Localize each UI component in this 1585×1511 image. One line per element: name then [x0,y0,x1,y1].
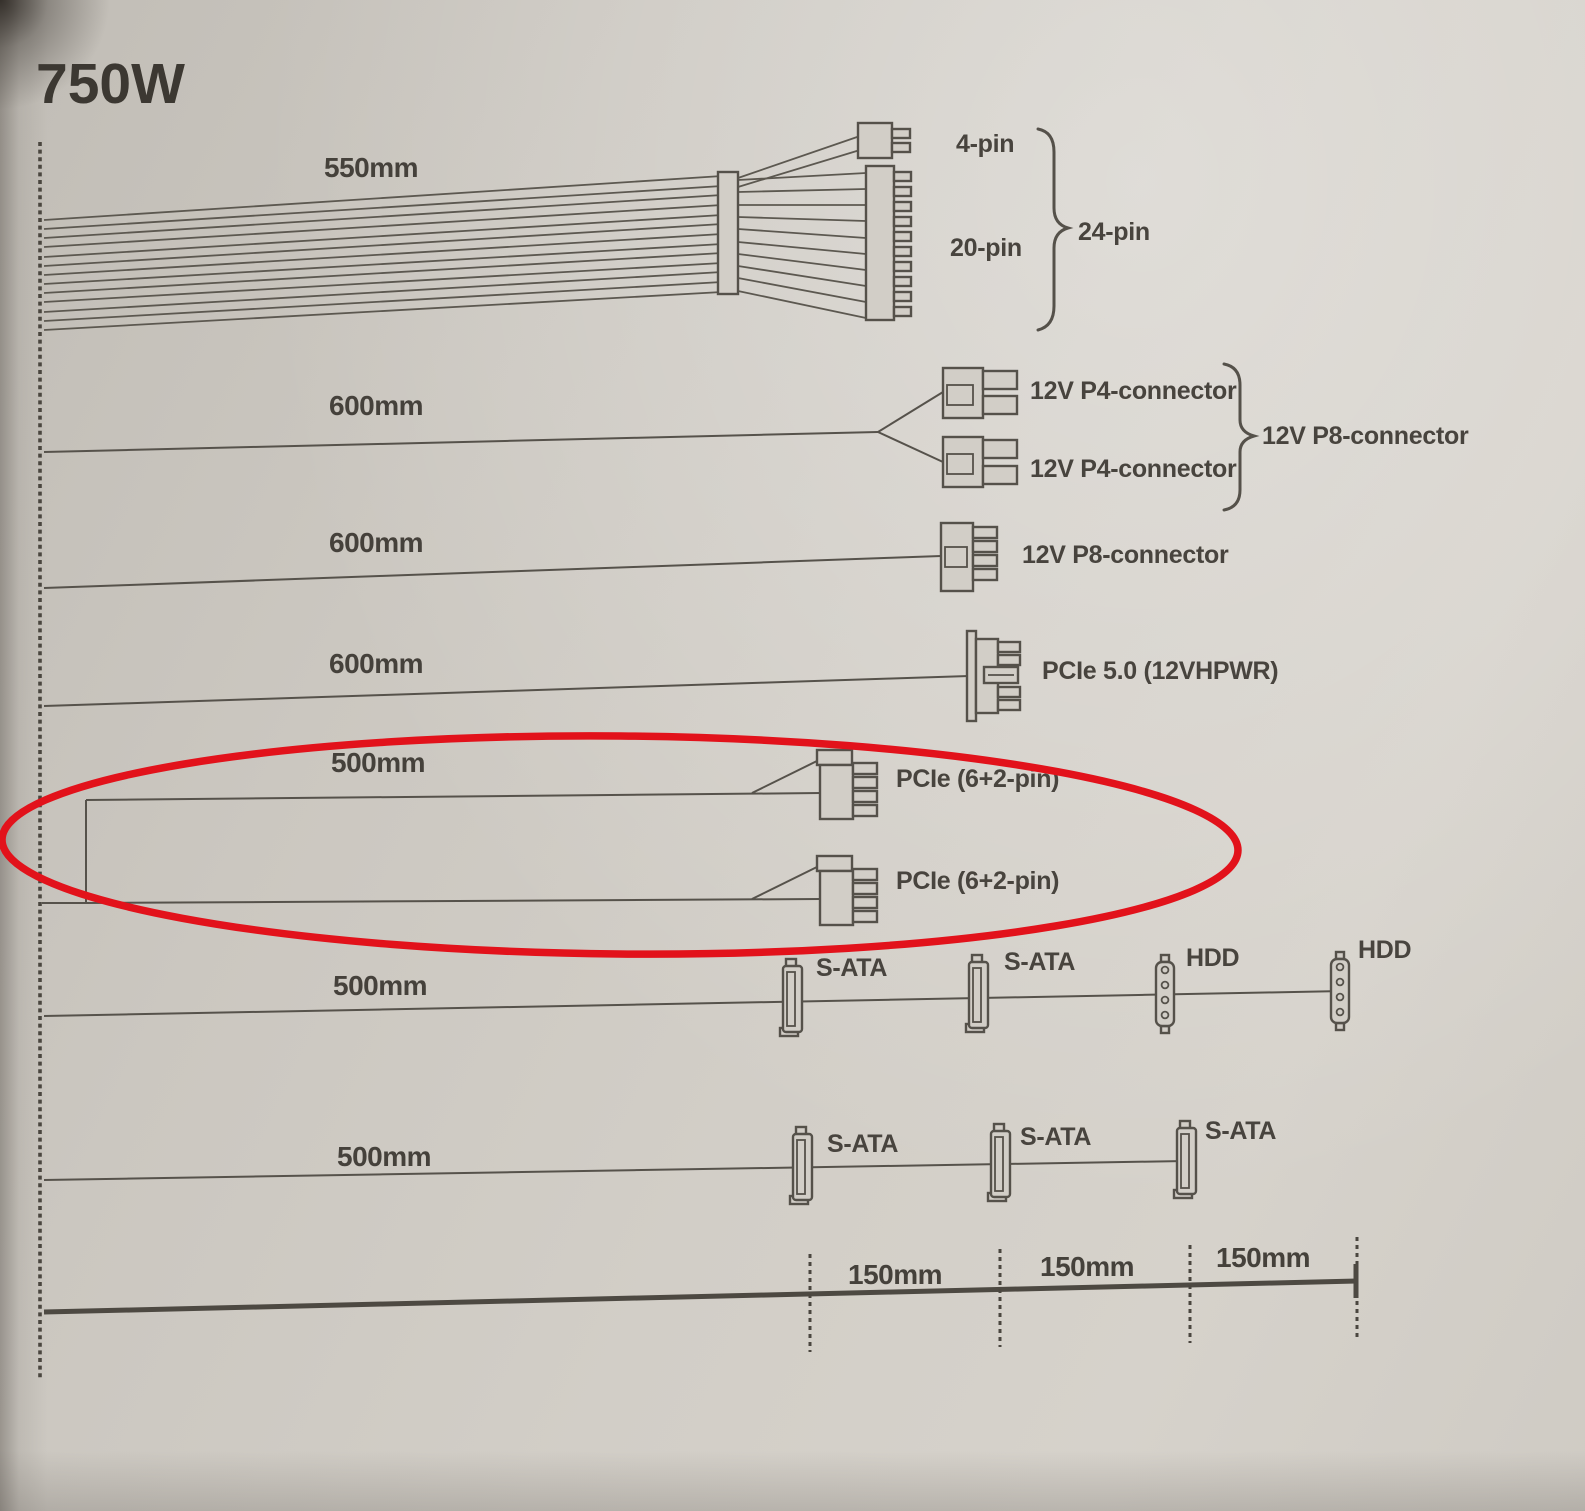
photographed-manual-page: 750W 550mm [0,0,1585,1511]
annotation-layer [0,0,1585,1511]
red-highlight-ellipse [1,731,1239,960]
